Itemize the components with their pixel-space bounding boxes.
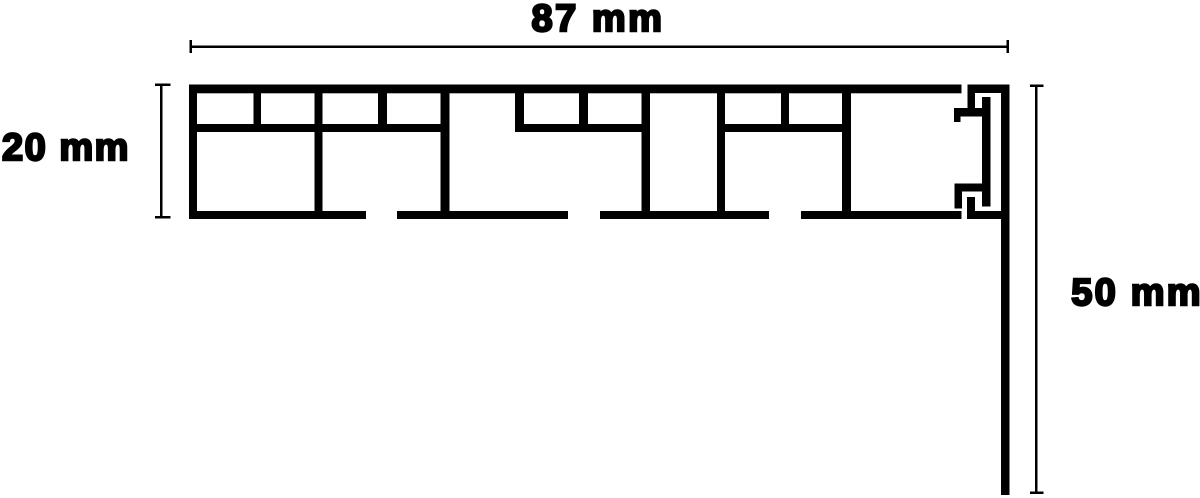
svg-text:87 mm: 87 mm bbox=[532, 0, 665, 40]
svg-text:50 mm: 50 mm bbox=[1071, 272, 1200, 314]
svg-text:20 mm: 20 mm bbox=[2, 127, 130, 169]
